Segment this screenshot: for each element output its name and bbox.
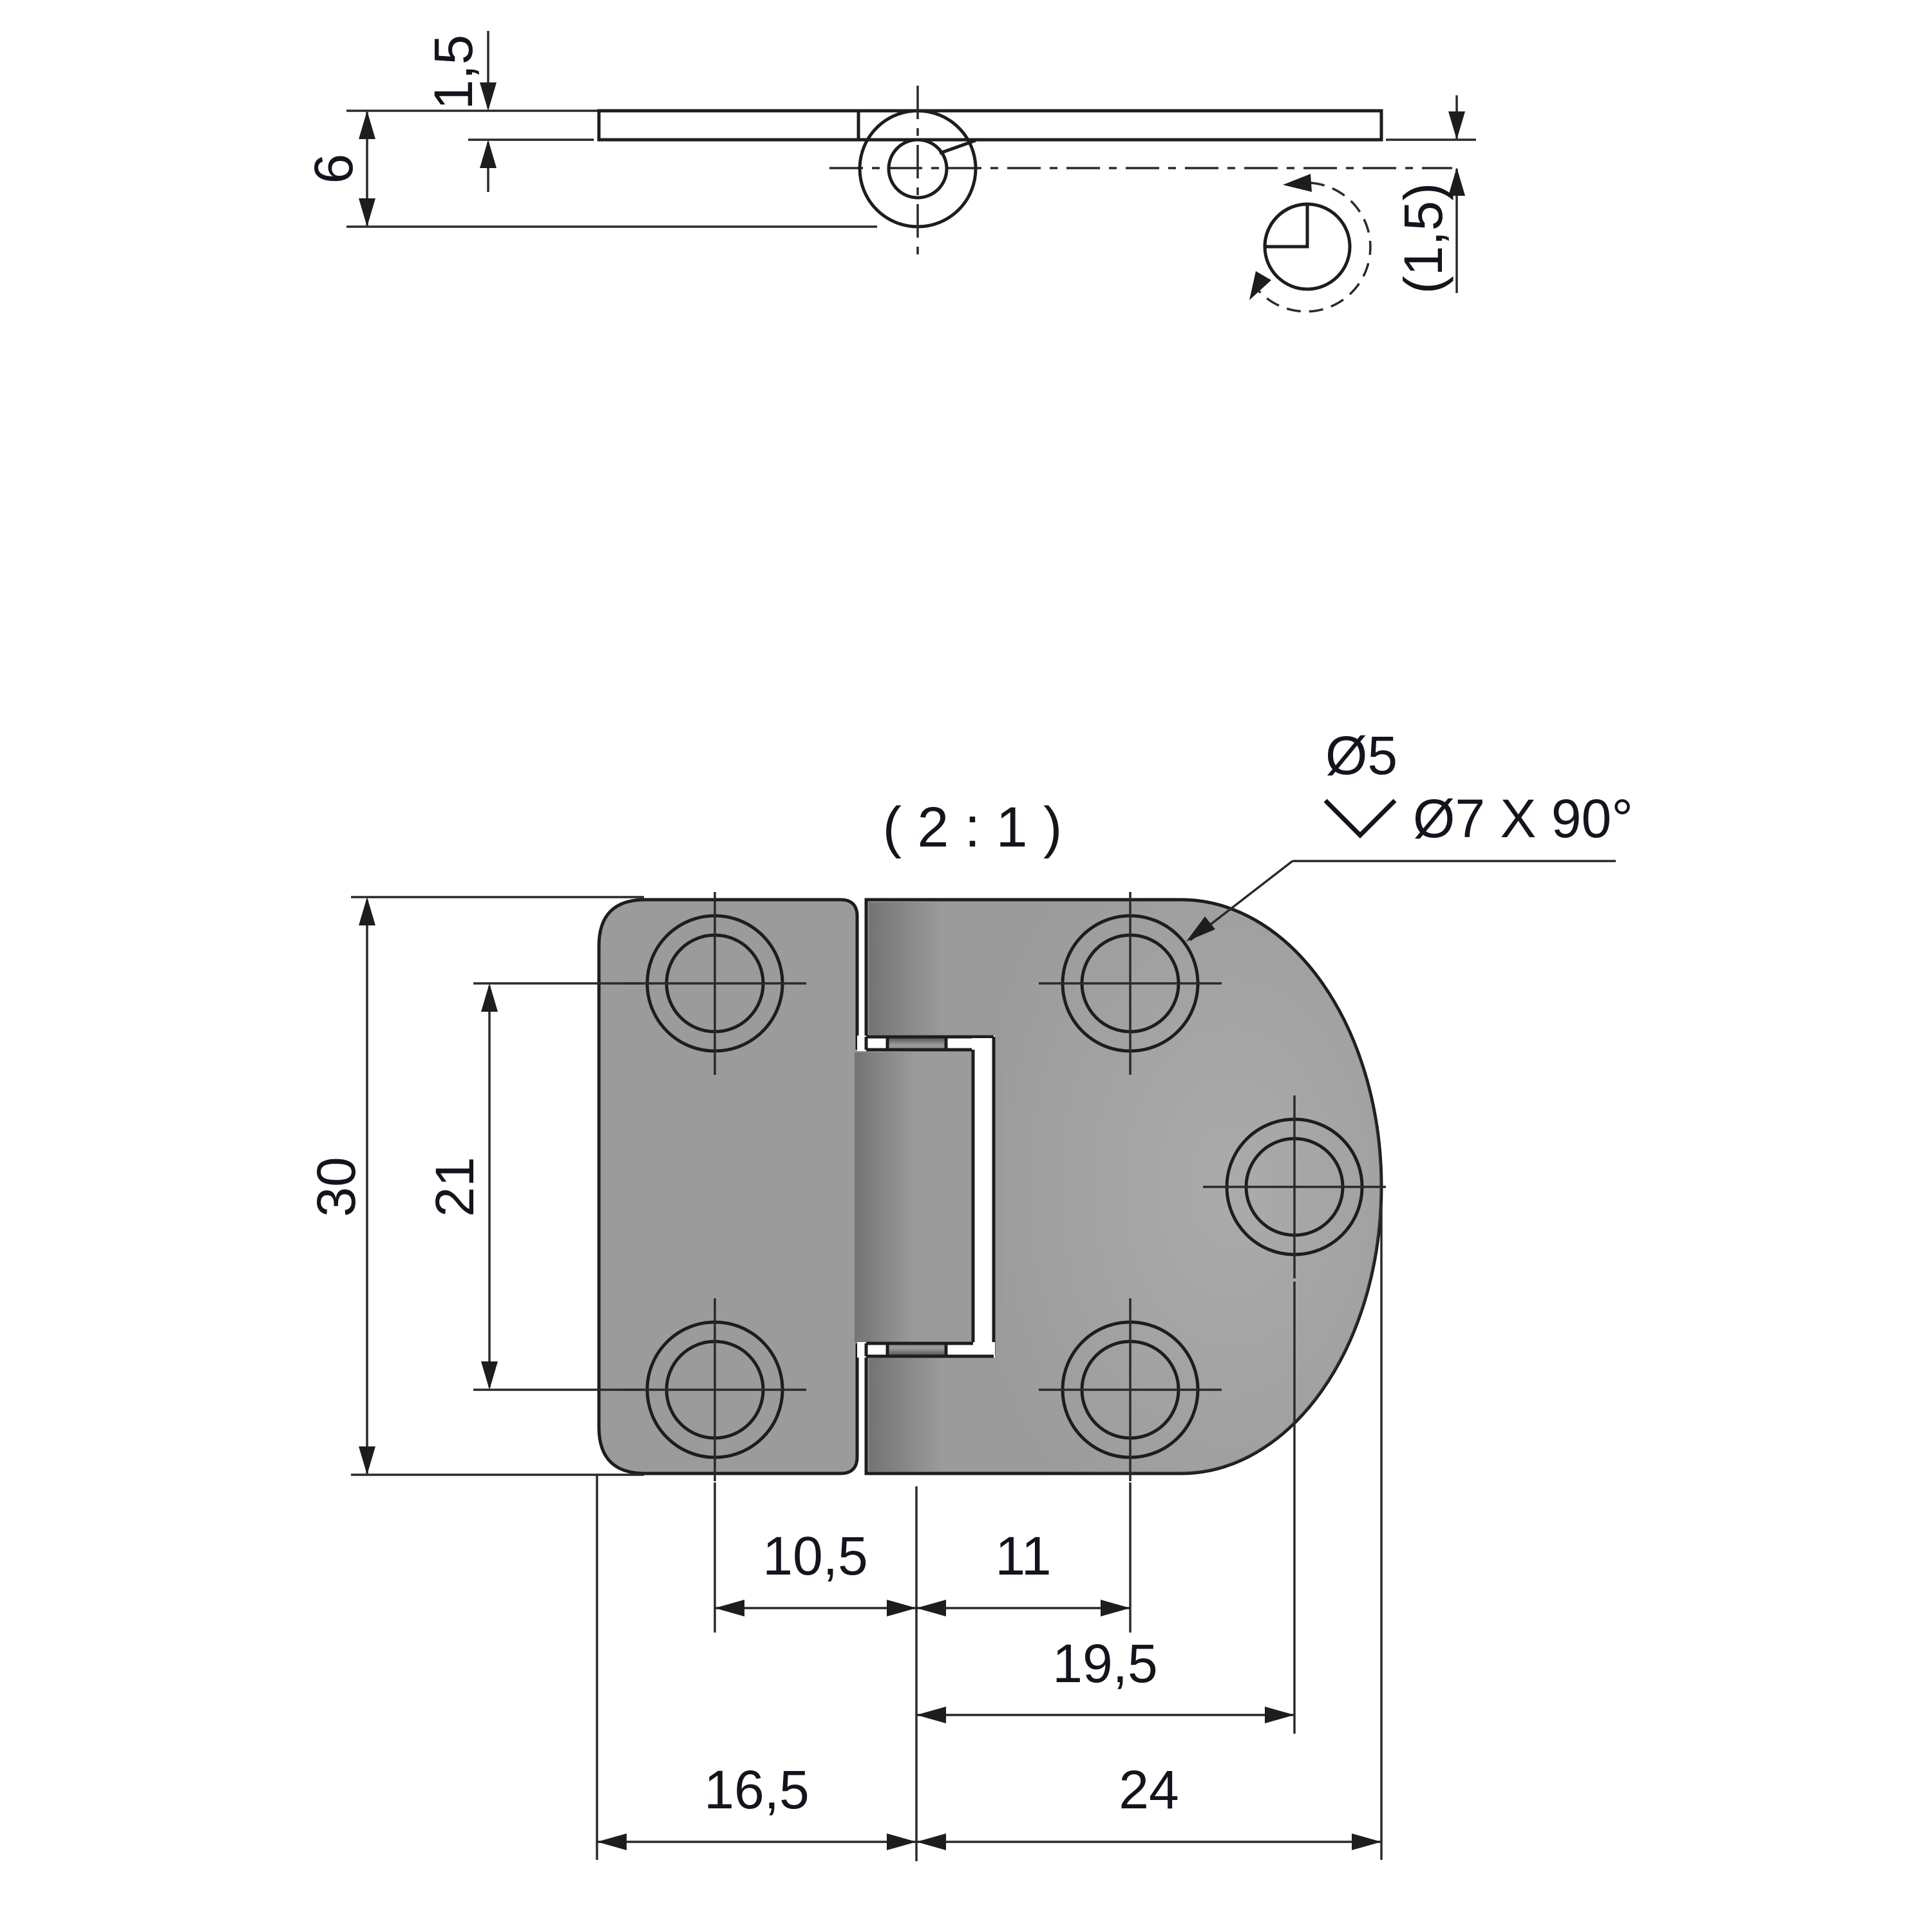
dimension-arrow bbox=[916, 1707, 946, 1723]
dim-label-axis-to-right-edge: 24 bbox=[1119, 1759, 1179, 1820]
dimension-arrow bbox=[359, 198, 375, 227]
scale-label: ( 2 : 1 ) bbox=[883, 795, 1063, 859]
dimension-arrow bbox=[359, 111, 375, 139]
dim-label-axis-to-side-hole: 19,5 bbox=[1052, 1633, 1158, 1694]
drawing-canvas: 1,5 6 (1,5) ( 2 : 1 ) bbox=[0, 0, 1932, 1932]
dimension-arrow bbox=[1448, 111, 1465, 140]
joint-slot-bottom bbox=[857, 1342, 995, 1358]
dim-label-left-edge-to-axis: 16,5 bbox=[704, 1759, 810, 1820]
joint-channel bbox=[972, 1037, 995, 1356]
dim-label-side-pin-offset: (1,5) bbox=[1393, 183, 1454, 294]
rotation-direction-icon bbox=[1249, 174, 1370, 312]
countersink-icon bbox=[1325, 800, 1395, 835]
dimension-arrow bbox=[481, 983, 498, 1012]
dim-label-axis-to-right-holes: 11 bbox=[995, 1526, 1051, 1586]
shading-top-band bbox=[869, 902, 943, 1035]
dimension-arrow bbox=[916, 1833, 946, 1850]
dim-row-side-hole: 19,5 bbox=[916, 1633, 1294, 1723]
hinge-technical-drawing: 1,5 6 (1,5) ( 2 : 1 ) bbox=[0, 0, 1932, 1932]
dim-label-left-holes-to-axis: 10,5 bbox=[762, 1526, 868, 1586]
shading-tongue bbox=[855, 1052, 916, 1342]
callout-countersink-spec: Ø7 X 90° bbox=[1413, 788, 1633, 849]
left-leaf bbox=[599, 900, 857, 1473]
dimension-arrow bbox=[359, 1446, 375, 1475]
dimension-arrow bbox=[887, 1833, 916, 1850]
hole-callout: Ø5 Ø7 X 90° bbox=[1186, 725, 1633, 942]
dim-label-side-thickness: 1,5 bbox=[423, 35, 484, 110]
side-view: 1,5 6 (1,5) bbox=[303, 31, 1476, 312]
dimension-arrow bbox=[1101, 1600, 1130, 1616]
plan-view: ( 2 : 1 ) bbox=[306, 725, 1633, 1861]
dimension-arrow bbox=[597, 1833, 627, 1850]
dimension-arrow bbox=[1265, 1707, 1294, 1723]
dim-side-pin-offset: (1,5) bbox=[1393, 95, 1465, 294]
dimension-arrow bbox=[480, 140, 497, 168]
shading-bottom-band bbox=[869, 1358, 943, 1472]
dim-row-edges: 16,5 24 bbox=[597, 1759, 1381, 1850]
dim-label-side-height: 6 bbox=[303, 154, 364, 184]
dim-side-height: 6 bbox=[303, 111, 375, 227]
dim-label-plan-height: 30 bbox=[306, 1157, 366, 1217]
dim-label-plan-hole-spacing: 21 bbox=[424, 1157, 485, 1217]
dimension-arrow bbox=[887, 1600, 916, 1616]
hinge-plate-side bbox=[599, 111, 1381, 140]
dimension-arrow bbox=[1352, 1833, 1381, 1850]
dimension-arrow bbox=[359, 897, 375, 925]
dimension-arrow bbox=[916, 1600, 946, 1616]
callout-hole-diameter: Ø5 bbox=[1325, 725, 1397, 786]
dimension-arrow bbox=[481, 1361, 498, 1390]
dimension-arrow bbox=[715, 1600, 744, 1616]
dim-row-hole-offsets: 10,5 11 bbox=[715, 1526, 1130, 1616]
